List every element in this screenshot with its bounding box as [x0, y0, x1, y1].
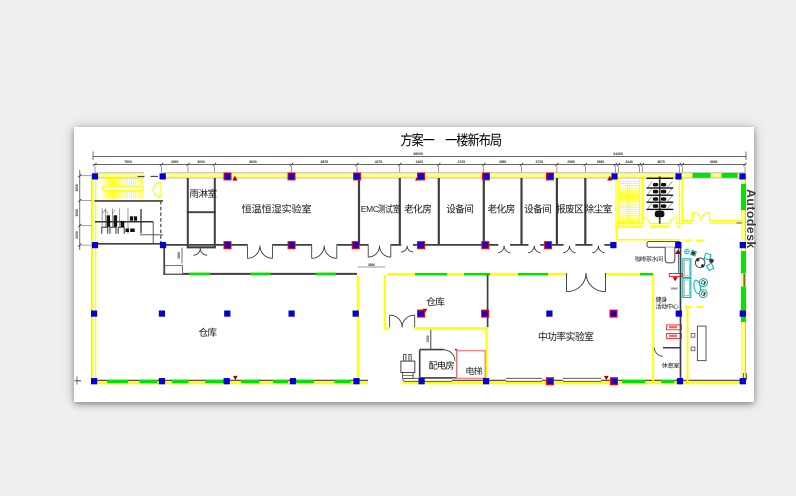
svg-text:4725: 4725	[458, 160, 466, 164]
svg-text:4100: 4100	[416, 160, 424, 164]
svg-text:3000: 3000	[75, 209, 79, 217]
svg-text:2980: 2980	[567, 160, 575, 164]
svg-text:3000: 3000	[171, 160, 179, 164]
svg-text:3000: 3000	[177, 252, 181, 259]
svg-text:3875: 3875	[657, 160, 665, 164]
svg-text:6875: 6875	[321, 160, 329, 164]
svg-text:7500: 7500	[124, 160, 132, 164]
svg-text:2985: 2985	[597, 160, 605, 164]
svg-text:3000: 3000	[197, 160, 205, 164]
svg-text:4275: 4275	[375, 160, 383, 164]
svg-text:8000: 8000	[249, 160, 257, 164]
svg-text:3000: 3000	[75, 184, 79, 192]
svg-text:2300: 2300	[75, 231, 79, 239]
svg-text:45000: 45000	[413, 152, 423, 156]
svg-text:3725: 3725	[536, 160, 544, 164]
svg-text:1500: 1500	[426, 335, 430, 342]
svg-text:6600: 6600	[710, 160, 718, 164]
svg-text:EMC: EMC	[361, 204, 379, 214]
svg-text:2440: 2440	[625, 160, 633, 164]
svg-text:Autodesk: Autodesk	[744, 189, 758, 249]
svg-text:24400: 24400	[613, 152, 623, 156]
svg-text:3000: 3000	[368, 263, 375, 267]
svg-text:3950: 3950	[499, 160, 507, 164]
